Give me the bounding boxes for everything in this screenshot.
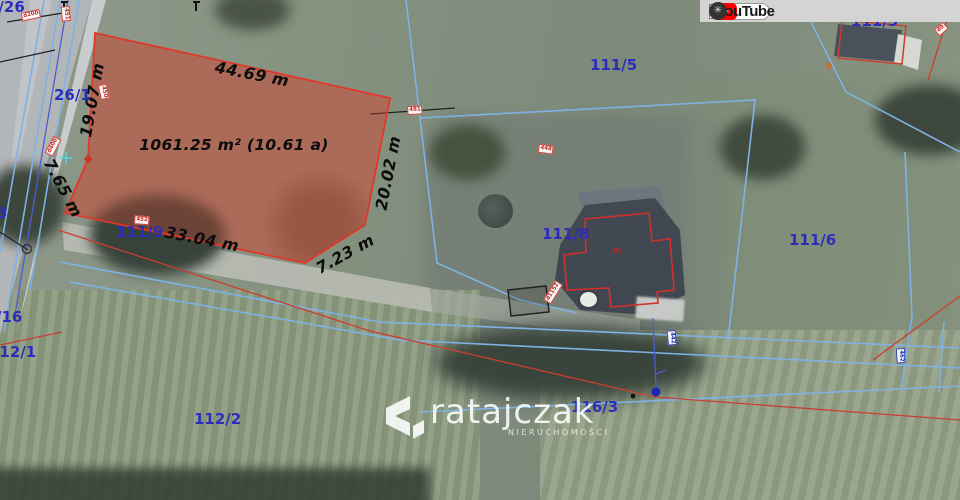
tree-row: [435, 325, 705, 400]
point-label: 451: [61, 6, 71, 22]
parcel-number: 26/1: [54, 86, 91, 104]
round-pool: [478, 194, 513, 228]
parcel-number: 111/9: [116, 223, 163, 241]
building-label: m: [613, 246, 621, 255]
parcel-number: 112/1: [0, 343, 36, 361]
terrace: [635, 296, 684, 321]
tree: [720, 115, 805, 180]
parcel-number: 111/6: [789, 231, 836, 249]
parcel-number: 112/2: [194, 410, 241, 428]
parcel-number: 3: [0, 204, 7, 222]
parcel-number: 111/8: [542, 225, 589, 243]
ratajczak-logo-icon: [386, 396, 426, 446]
watermark-subtitle: NIERUCHOMOŚCI: [508, 428, 609, 437]
parcel-number: 111/5: [590, 56, 637, 74]
parcel-area-label: 1061.25 m² (10.61 a): [139, 136, 328, 154]
hedge: [0, 468, 430, 500]
watermark-brand: ratajczak: [430, 392, 595, 432]
parcel-number: 6/26: [0, 0, 25, 16]
small-white-structure: [580, 292, 597, 307]
map-canvas[interactable]: 44.69 m 19.07 m 7.65 m 33.04 m 7.23 m 20…: [0, 0, 960, 500]
point-label: 481: [407, 105, 423, 114]
map-toolbar: pol ▲▼ ? YouTube ✳: [700, 0, 960, 22]
point-label: 462: [896, 348, 906, 364]
emblem-button[interactable]: ✳: [709, 2, 727, 20]
tree: [430, 125, 505, 180]
point-label: 442: [667, 330, 677, 346]
parcel-number: /16: [0, 308, 22, 326]
